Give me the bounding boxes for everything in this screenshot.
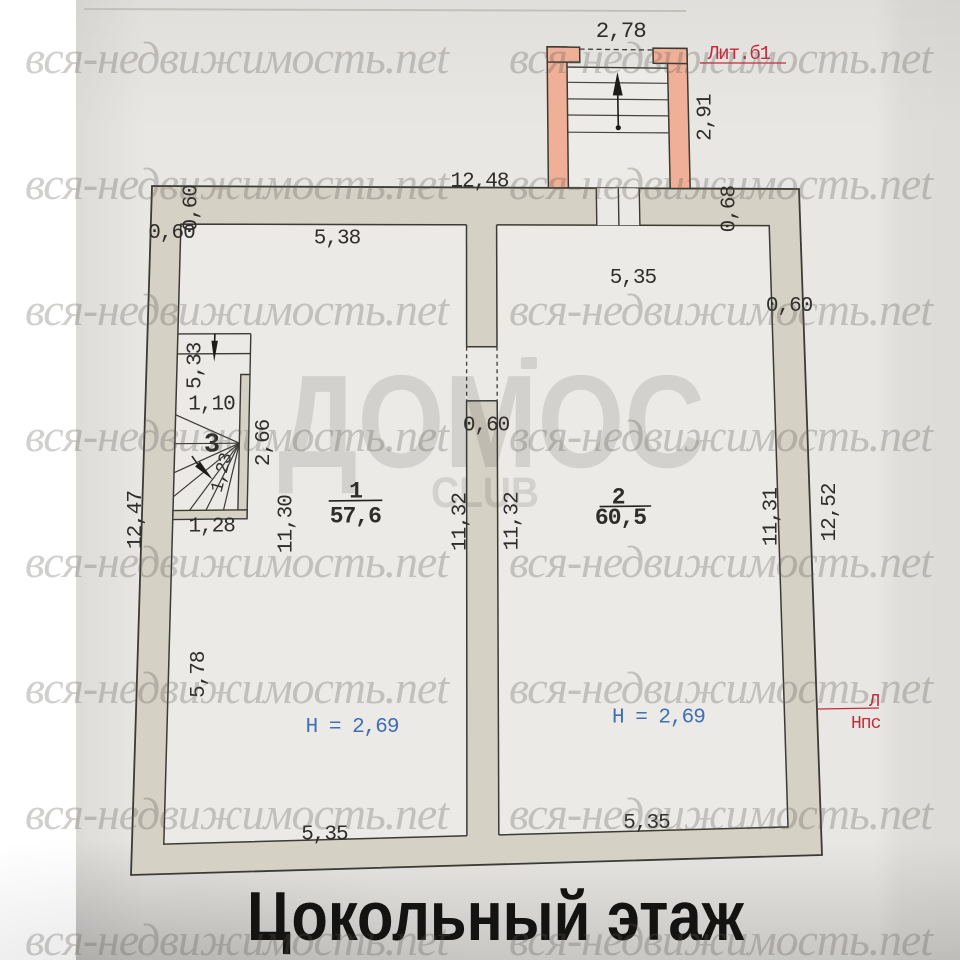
svg-text:вся-недвижимость.net: вся-недвижимость.net [25, 410, 450, 461]
svg-text:вся-недвижимость.net: вся-недвижимость.net [25, 536, 450, 587]
svg-text:вся-недвижимость.net: вся-недвижимость.net [509, 410, 934, 461]
svg-text:CLUB: CLUB [431, 469, 539, 517]
svg-text:5,33: 5,33 [184, 342, 207, 389]
svg-text:Нпс: Нпс [851, 714, 881, 734]
svg-text:вся-недвижимость.net: вся-недвижимость.net [25, 788, 450, 839]
svg-text:вся-недвижимость.net: вся-недвижимость.net [509, 914, 934, 960]
svg-text:вся-недвижимость.net: вся-недвижимость.net [509, 662, 934, 713]
svg-text:вся-недвижимость.net: вся-недвижимость.net [25, 662, 450, 713]
svg-text:вся-недвижимость.net: вся-недвижимость.net [509, 32, 934, 83]
svg-text:вся-недвижимость.net: вся-недвижимость.net [25, 158, 450, 209]
svg-text:12,52: 12,52 [819, 483, 842, 541]
svg-text:0,60: 0,60 [148, 222, 195, 245]
svg-text:вся-недвижимость.net: вся-недвижимость.net [509, 788, 934, 839]
svg-text:5,38: 5,38 [314, 227, 361, 250]
svg-text:H = 2,69: H = 2,69 [306, 716, 399, 739]
svg-text:12,48: 12,48 [450, 171, 508, 194]
svg-text:57,6: 57,6 [330, 503, 381, 529]
svg-text:вся-недвижимость.net: вся-недвижимость.net [25, 32, 450, 83]
svg-text:60,5: 60,5 [595, 505, 646, 531]
svg-text:вся-недвижимость.net: вся-недвижимость.net [509, 158, 934, 209]
svg-text:вся-недвижимость.net: вся-недвижимость.net [509, 536, 934, 587]
svg-text:вся-недвижимость.net: вся-недвижимость.net [25, 284, 450, 335]
svg-text:2,91: 2,91 [694, 94, 717, 141]
svg-text:вся-недвижимость.net: вся-недвижимость.net [25, 914, 450, 960]
svg-text:вся-недвижимость.net: вся-недвижимость.net [509, 284, 934, 335]
